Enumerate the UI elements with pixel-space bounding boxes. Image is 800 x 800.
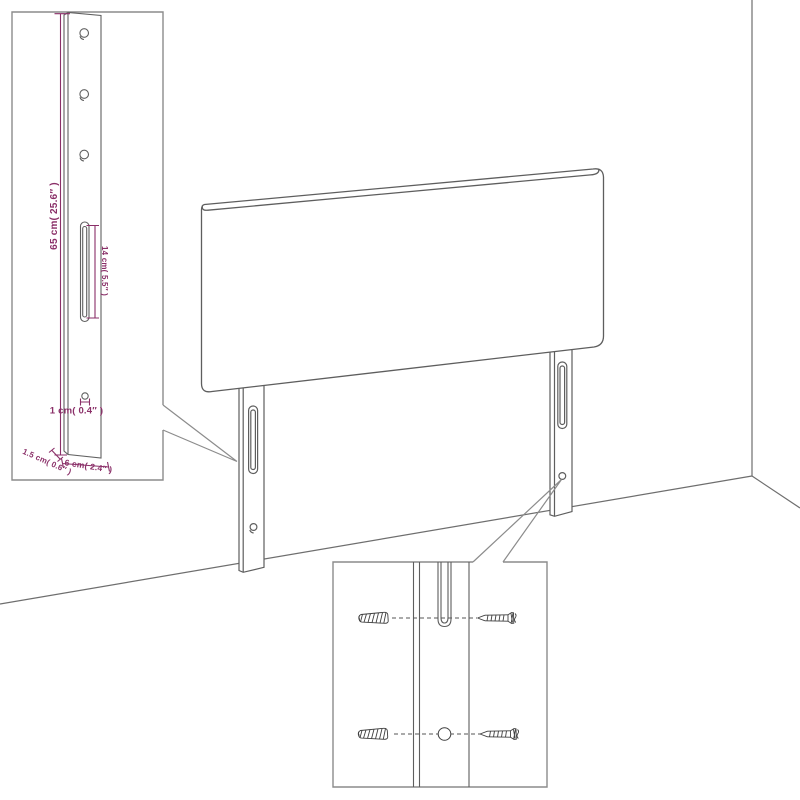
wall-plug-icon	[359, 612, 388, 623]
callout-pointer-lines	[163, 405, 562, 562]
mounting-callout-box	[333, 562, 547, 787]
screw-hole-icon	[80, 90, 89, 99]
screw-hole-icon	[80, 29, 89, 38]
leg-hole-icon	[250, 524, 257, 531]
leg-hole-icon	[559, 473, 566, 480]
dimension-label-slot-length: 14 cm( 5.5″ )	[100, 246, 109, 296]
left-leg	[239, 383, 264, 572]
headboard-diagram: 65 cm( 25.6″ ) 14 cm( 5.5″ ) 1 cm( 0.4″ …	[0, 0, 800, 800]
dimension-label-leg-height: 65 cm( 25.6″ )	[49, 182, 60, 250]
dimension-label-hole-diameter: 1 cm( 0.4″ )	[50, 406, 103, 417]
screw-hole-icon	[82, 393, 88, 399]
right-leg	[550, 336, 572, 516]
mounting-hole-icon	[438, 728, 451, 741]
dimension-label-leg-width: 6 cm( 2.4″ )	[64, 457, 113, 474]
mounting-slot-icon	[81, 222, 90, 322]
screw-icon	[478, 613, 517, 624]
diagram-canvas: 65 cm( 25.6″ ) 14 cm( 5.5″ ) 1 cm( 0.4″ …	[0, 0, 800, 800]
mounting-slot-icon	[438, 562, 451, 627]
dimension-callout-box: 65 cm( 25.6″ ) 14 cm( 5.5″ ) 1 cm( 0.4″ …	[12, 12, 163, 480]
screw-icon	[480, 729, 519, 740]
screw-hole-icon	[80, 150, 89, 159]
headboard-panel	[202, 169, 604, 392]
wall-plug-icon	[358, 728, 387, 739]
